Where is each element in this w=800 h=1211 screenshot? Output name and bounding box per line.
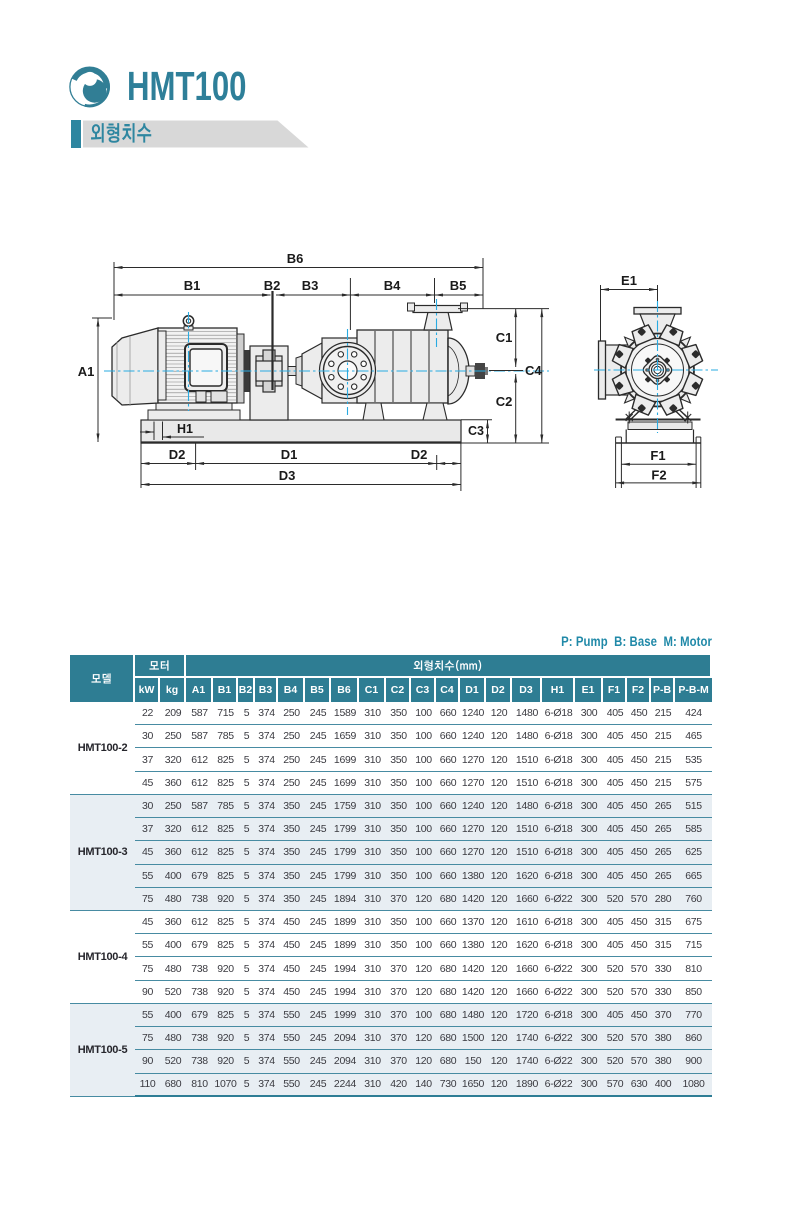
svg-text:B6: B6 bbox=[287, 251, 304, 266]
svg-text:D2: D2 bbox=[411, 447, 428, 462]
svg-text:D1: D1 bbox=[281, 447, 298, 462]
svg-text:D2: D2 bbox=[169, 447, 186, 462]
svg-text:H1: H1 bbox=[177, 422, 193, 436]
svg-text:C3: C3 bbox=[468, 424, 484, 438]
svg-text:C1: C1 bbox=[496, 330, 513, 345]
svg-text:B5: B5 bbox=[450, 278, 467, 293]
svg-text:B3: B3 bbox=[302, 278, 319, 293]
svg-text:B1: B1 bbox=[184, 278, 201, 293]
svg-text:A1: A1 bbox=[78, 364, 95, 379]
svg-text:D3: D3 bbox=[279, 468, 296, 483]
svg-text:F1: F1 bbox=[650, 448, 665, 463]
svg-text:C4: C4 bbox=[525, 363, 542, 378]
svg-text:B4: B4 bbox=[384, 278, 401, 293]
svg-text:C2: C2 bbox=[496, 394, 513, 409]
svg-text:E1: E1 bbox=[621, 273, 637, 288]
svg-text:F2: F2 bbox=[651, 468, 666, 483]
svg-text:B2: B2 bbox=[264, 278, 281, 293]
